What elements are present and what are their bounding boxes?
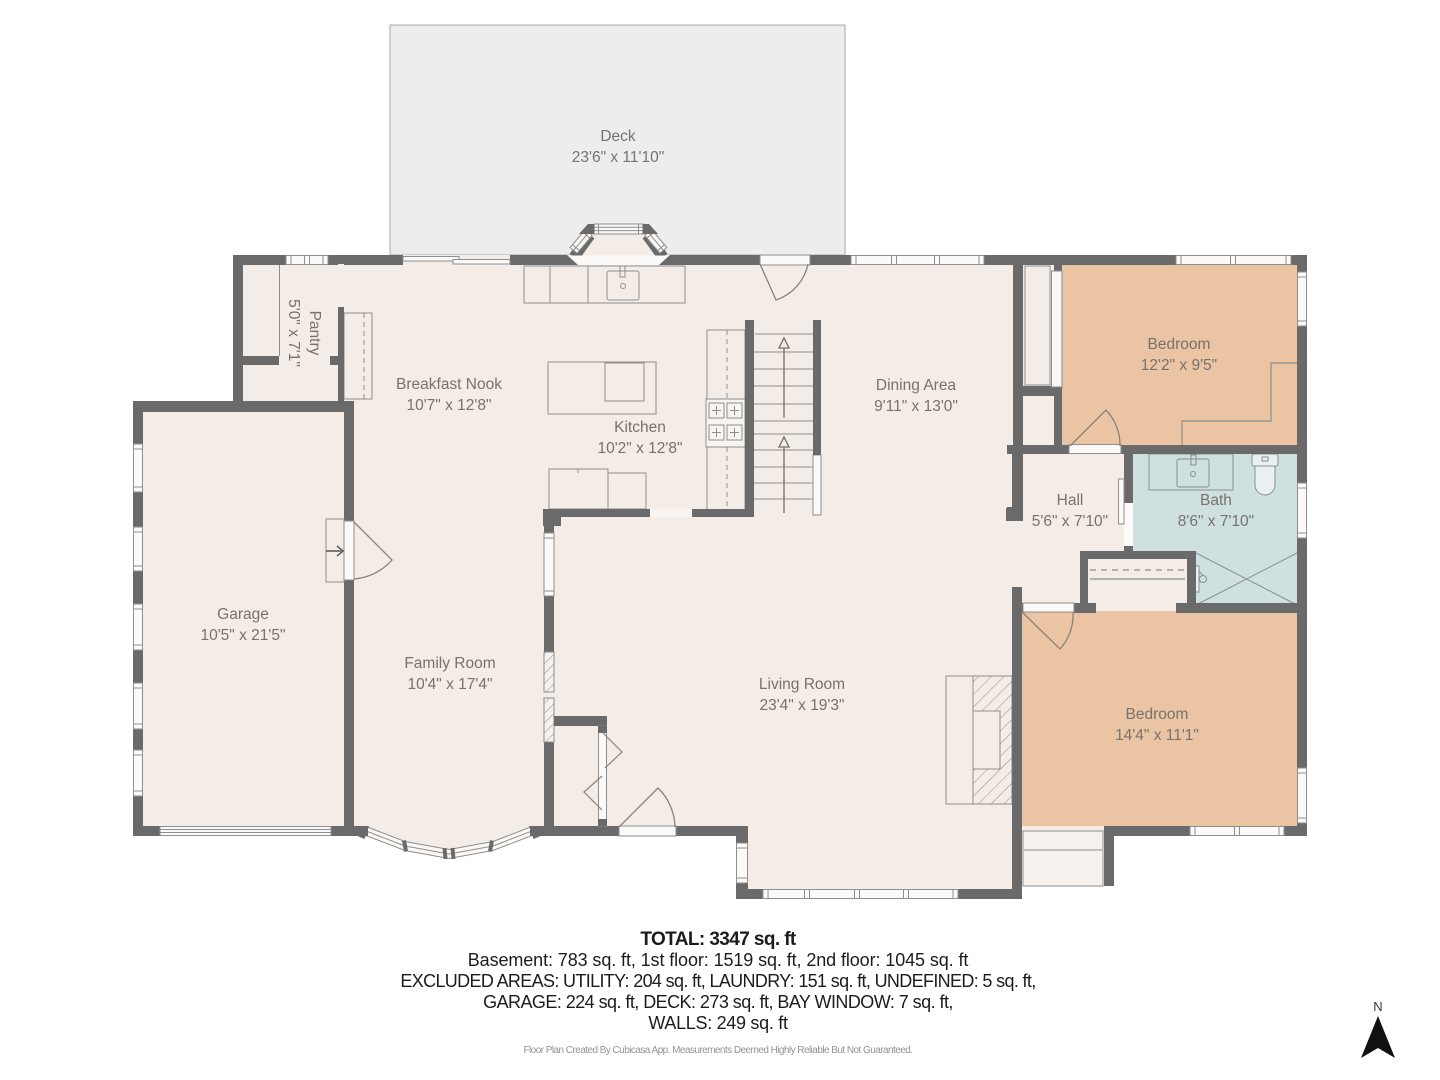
svg-text:Bath: Bath	[1200, 492, 1232, 509]
svg-text:23'6" x 11'10": 23'6" x 11'10"	[572, 149, 664, 166]
svg-text:Kitchen: Kitchen	[614, 419, 666, 436]
svg-text:Basement: 783 sq. ft, 1st floo: Basement: 783 sq. ft, 1st floor: 1519 sq…	[468, 950, 969, 970]
svg-text:Bedroom: Bedroom	[1148, 336, 1211, 353]
svg-text:Hall: Hall	[1057, 492, 1084, 509]
svg-text:Deck: Deck	[600, 128, 636, 145]
svg-text:9'11" x 13'0": 9'11" x 13'0"	[874, 398, 958, 415]
svg-text:Breakfast Nook: Breakfast Nook	[396, 376, 502, 393]
svg-text:WALLS: 249 sq. ft: WALLS: 249 sq. ft	[648, 1013, 788, 1033]
svg-text:Garage: Garage	[217, 606, 269, 623]
svg-text:EXCLUDED AREAS: UTILITY: 204 s: EXCLUDED AREAS: UTILITY: 204 sq. ft, LAU…	[400, 971, 1035, 991]
svg-text:Floor Plan Created By Cubicasa: Floor Plan Created By Cubicasa App. Meas…	[523, 1045, 912, 1056]
svg-text:10'5" x 21'5": 10'5" x 21'5"	[200, 627, 285, 644]
svg-text:N: N	[1373, 999, 1382, 1014]
svg-text:10'4" x 17'4": 10'4" x 17'4"	[407, 676, 492, 693]
svg-text:10'2" x 12'8": 10'2" x 12'8"	[597, 440, 682, 457]
svg-text:10'7" x 12'8": 10'7" x 12'8"	[406, 397, 491, 414]
svg-text:5'0" x 7'1": 5'0" x 7'1"	[285, 299, 302, 367]
svg-text:Dining Area: Dining Area	[876, 377, 957, 394]
svg-text:12'2" x 9'5": 12'2" x 9'5"	[1141, 357, 1217, 374]
svg-text:23'4" x 19'3": 23'4" x 19'3"	[759, 697, 844, 714]
svg-text:5'6" x 7'10": 5'6" x 7'10"	[1032, 513, 1108, 530]
svg-text:Pantry: Pantry	[306, 311, 323, 356]
svg-text:Living Room: Living Room	[759, 676, 845, 693]
svg-text:Bedroom: Bedroom	[1126, 706, 1189, 723]
svg-text:14'4" x 11'1": 14'4" x 11'1"	[1115, 727, 1199, 744]
svg-text:8'6" x 7'10": 8'6" x 7'10"	[1178, 513, 1254, 530]
svg-text:Family Room: Family Room	[404, 655, 495, 672]
svg-text:GARAGE: 224 sq. ft, DECK: 273: GARAGE: 224 sq. ft, DECK: 273 sq. ft, BA…	[483, 992, 953, 1012]
svg-text:TOTAL: 3347 sq. ft: TOTAL: 3347 sq. ft	[640, 929, 797, 950]
